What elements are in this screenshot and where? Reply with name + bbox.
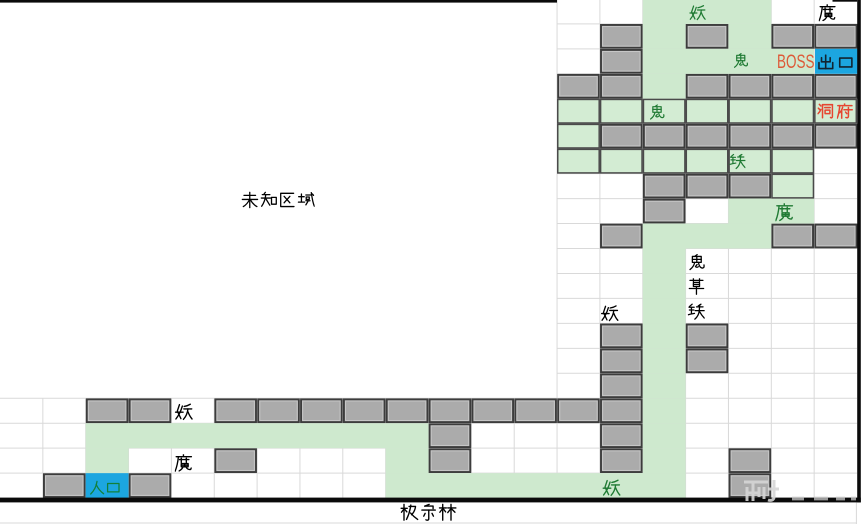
svg-text:BOSS: BOSS — [777, 51, 815, 73]
